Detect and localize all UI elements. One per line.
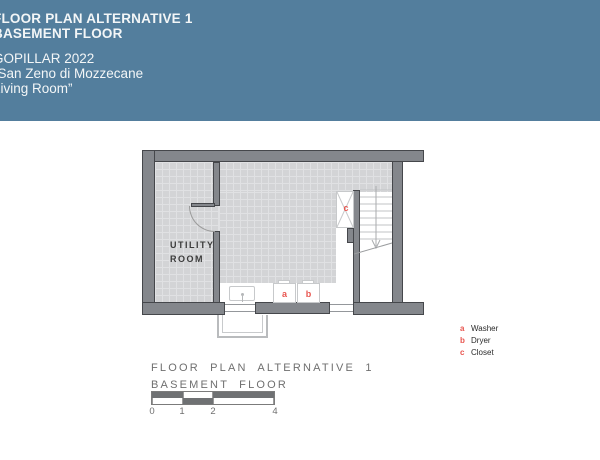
window-opening-left (225, 302, 255, 315)
header-text-block: FLOOR PLAN ALTERNATIVE 1 BASEMENT FLOOR … (0, 11, 193, 96)
staircase-drawing (354, 186, 394, 258)
utility-room-label-line1: UTILITY (170, 238, 215, 252)
scale-bar (151, 391, 275, 405)
scale-tick-0: 0 (149, 406, 154, 417)
scale-bar-bottom-row (152, 398, 274, 404)
scale-cell (213, 398, 274, 404)
legend-key-a: a (460, 324, 471, 333)
wall-top (142, 150, 424, 162)
legend-label-washer: Washer (471, 324, 498, 333)
stairwell-wall-pier (347, 228, 354, 243)
legend-label-dryer: Dryer (471, 336, 491, 345)
sink-faucet-icon (242, 296, 243, 302)
legend: a Washer b Dryer c Closet (460, 324, 498, 360)
caption-line2: BASEMENT FLOOR (151, 379, 288, 391)
partition-wall-upper (213, 162, 220, 206)
legend-item-closet: c Closet (460, 348, 498, 360)
wall-bottom-middle-segment (255, 302, 330, 314)
closet-marker: c (337, 203, 355, 213)
caption-line1: FLOOR PLAN ALTERNATIVE 1 (151, 362, 374, 374)
main-room-floor (219, 192, 336, 283)
sink (229, 286, 255, 301)
header-title-line2: BASEMENT FLOOR (0, 26, 193, 41)
header-subtitle-location: “San Zeno di Mozzecane (0, 66, 193, 81)
wall-bottom-left-segment (142, 302, 225, 315)
scale-tick-2: 2 (210, 406, 215, 417)
header-subtitle-project: GOPILLAR 2022 (0, 51, 193, 66)
wall-bottom-right-segment (353, 302, 424, 315)
wall-left (142, 150, 155, 315)
washer-marker: a (274, 289, 295, 299)
header-title-line1: FLOOR PLAN ALTERNATIVE 1 (0, 11, 193, 26)
utility-room-label: UTILITY ROOM (170, 238, 215, 266)
header-subtitle-room: Living Room” (0, 81, 193, 96)
window-opening-right (330, 302, 353, 315)
utility-room-floor (155, 162, 219, 303)
utility-room-label-line2: ROOM (170, 252, 215, 266)
exterior-well-inner-outline (222, 315, 263, 333)
scale-tick-1: 1 (179, 406, 184, 417)
scale-cell (183, 398, 213, 404)
legend-item-dryer: b Dryer (460, 336, 498, 348)
legend-key-b: b (460, 336, 471, 345)
legend-key-c: c (460, 348, 471, 357)
window-right-lines (330, 304, 353, 312)
header-banner: FLOOR PLAN ALTERNATIVE 1 BASEMENT FLOOR … (0, 0, 600, 121)
dryer-marker: b (298, 289, 319, 299)
legend-label-closet: Closet (471, 348, 494, 357)
floor-plan-sheet: FLOOR PLAN ALTERNATIVE 1 BASEMENT FLOOR … (0, 0, 600, 460)
washer: a (273, 283, 296, 303)
dryer: b (297, 283, 320, 303)
closet: c (336, 191, 354, 228)
window-left-lines (225, 304, 255, 312)
legend-item-washer: a Washer (460, 324, 498, 336)
scale-tick-4: 4 (272, 406, 277, 417)
scale-cell (152, 398, 183, 404)
